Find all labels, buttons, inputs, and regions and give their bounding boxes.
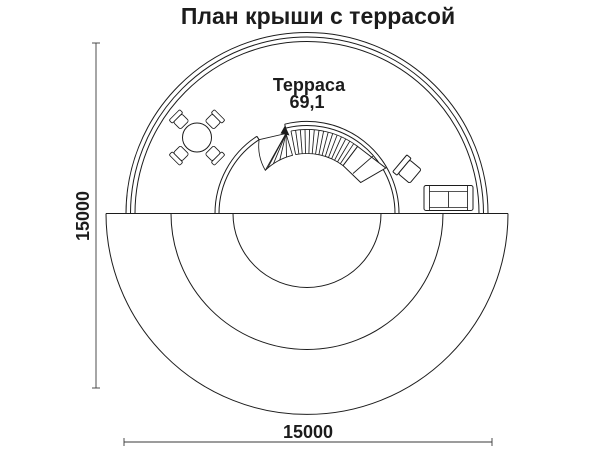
dimension-left-value: 15000 xyxy=(73,191,93,241)
round-table xyxy=(183,123,212,152)
stair-bottom-step xyxy=(343,146,386,182)
roof-plan-drawing: План крыши с террасой xyxy=(0,0,600,471)
stair-winder-landing xyxy=(259,134,293,171)
terrace-table-set xyxy=(169,110,225,166)
dimension-bottom-value: 15000 xyxy=(283,422,333,442)
spiral-staircase xyxy=(259,126,386,183)
dimension-line-bottom: 15000 xyxy=(124,422,492,446)
sofa xyxy=(424,186,473,211)
stair-direction-arrow xyxy=(281,126,290,136)
drawing-title: План крыши с террасой xyxy=(181,3,455,29)
armchair xyxy=(393,155,423,185)
lower-roof-tier-arcs xyxy=(106,214,508,415)
dimension-line-left: 15000 xyxy=(73,43,100,388)
roof-plan-page: План крыши с террасой xyxy=(0,0,600,471)
terrace-area-label: 69,1 xyxy=(289,92,324,112)
